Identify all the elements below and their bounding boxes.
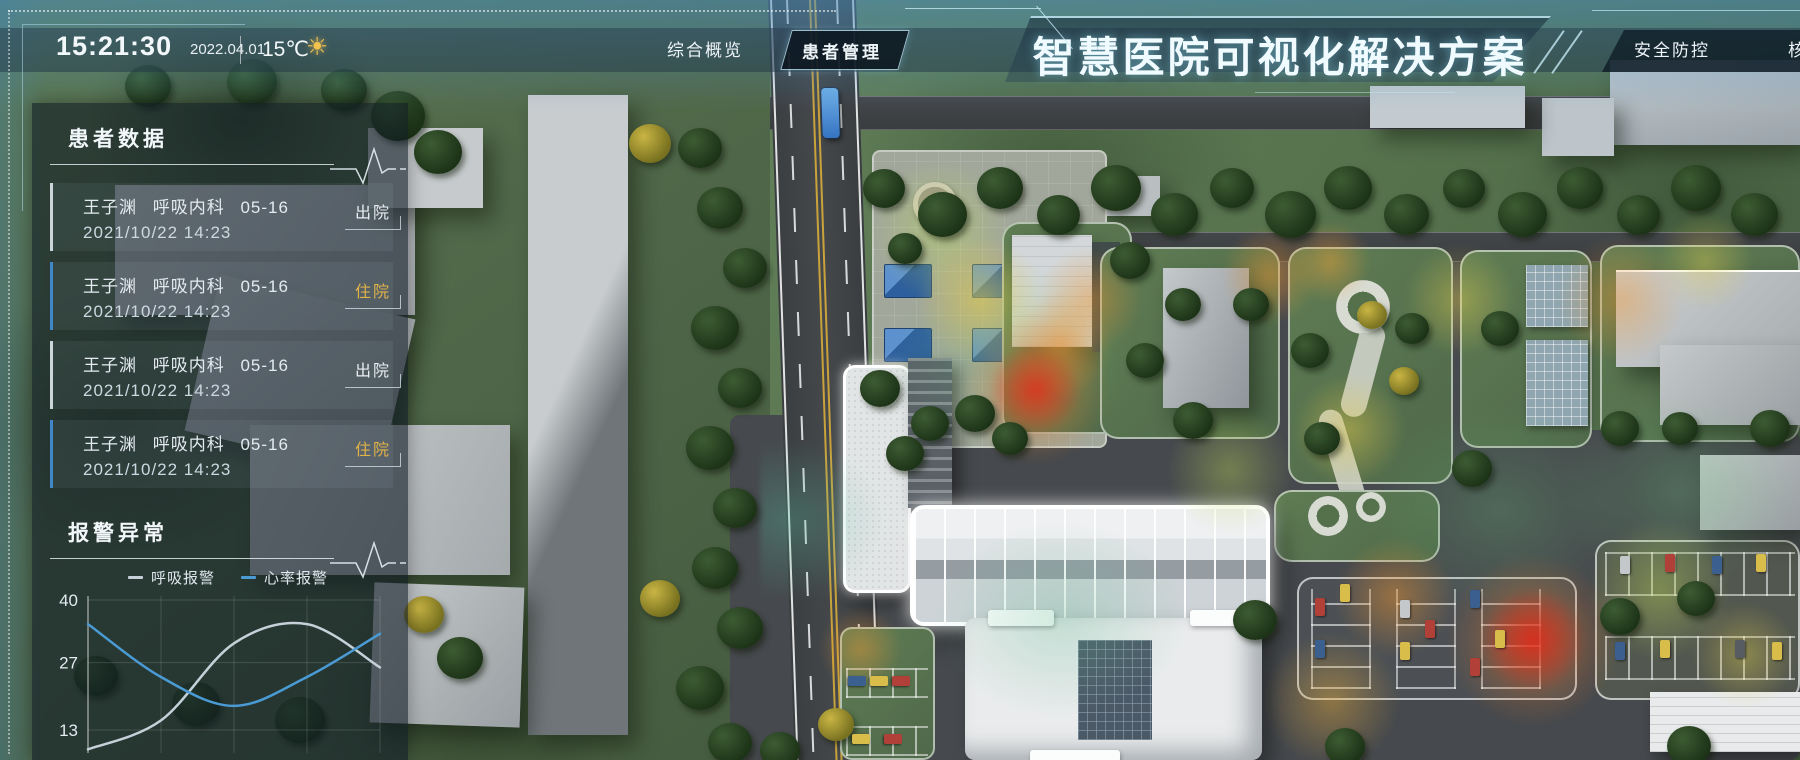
entrance-canopy	[1190, 610, 1246, 626]
park-circle	[1336, 280, 1390, 334]
parking-stalls	[1311, 589, 1371, 689]
deco-dotted-column	[8, 10, 10, 754]
section-underline	[50, 558, 334, 559]
parking-stalls	[1396, 589, 1456, 689]
main-building-highlighted[interactable]	[910, 505, 1270, 626]
status-label: 出院	[355, 357, 391, 381]
divider	[240, 36, 241, 64]
patient-bed: 05-16	[240, 435, 288, 454]
status-label: 住院	[355, 436, 391, 460]
building-west-slab	[528, 95, 628, 735]
tower-dark	[908, 358, 952, 508]
clock-date: 2022.04.01	[190, 41, 265, 58]
bus	[821, 88, 840, 138]
patient-card[interactable]: 王子渊 呼吸内科 05-16 2021/10/22 14:23 出院	[50, 341, 393, 409]
tab-nucleic-clipped[interactable]: 核	[1788, 36, 1800, 61]
deco-line	[1592, 10, 1800, 11]
parking-stalls	[1605, 552, 1795, 596]
tab-overview[interactable]: 综合概览	[667, 36, 743, 61]
legend-item-breath-alarm[interactable]: 呼吸报警	[128, 567, 215, 588]
clock-time: 15:21:30	[56, 31, 172, 62]
parking-stalls	[846, 726, 928, 756]
court-grid	[1526, 265, 1588, 327]
court-grid	[1526, 340, 1588, 426]
blue-canopy	[884, 328, 932, 362]
legend-dash-icon	[241, 576, 256, 579]
patient-card[interactable]: 王子渊 呼吸内科 05-16 2021/10/22 14:23 住院	[50, 262, 393, 330]
patient-department: 呼吸内科	[153, 356, 225, 375]
parking-stalls	[1605, 636, 1795, 680]
smart-hospital-dashboard: 15:21:30 2022.04.01 15℃ ☀ 综合概览 患者管理 智慧医院…	[0, 0, 1800, 760]
section-title-alarms: 报警异常	[68, 517, 168, 547]
patient-name: 王子渊	[83, 356, 137, 375]
entrance-canopy	[988, 610, 1054, 626]
deco-line	[905, 8, 1041, 9]
svg-text:40: 40	[59, 591, 78, 610]
patient-datetime: 2021/10/22 14:23	[83, 302, 231, 322]
road-lane-dashes	[786, 0, 815, 760]
patient-bed: 05-16	[240, 356, 288, 375]
patient-card[interactable]: 王子渊 呼吸内科 05-16 2021/10/22 14:23 住院	[50, 420, 393, 488]
patient-info: 王子渊 呼吸内科 05-16	[83, 430, 299, 455]
status-badge[interactable]: 住院	[345, 274, 401, 309]
status-badge[interactable]: 住院	[345, 432, 401, 467]
building-northeast-2	[1542, 98, 1614, 156]
park-circle	[1308, 496, 1348, 536]
blue-canopy	[884, 264, 932, 298]
legend-dash-icon	[128, 576, 143, 579]
entrance-canopy	[1030, 750, 1120, 760]
legend-label: 呼吸报警	[151, 567, 215, 588]
building-east-2	[1660, 345, 1800, 425]
patient-datetime: 2021/10/22 14:23	[83, 223, 231, 243]
building-northeast-1	[1610, 60, 1800, 145]
sun-icon: ☀	[306, 32, 328, 62]
parking-stalls	[846, 668, 928, 698]
status-badge[interactable]: 出院	[345, 195, 401, 230]
patient-name: 王子渊	[83, 435, 137, 454]
building-warehouse	[1650, 692, 1800, 752]
status-badge[interactable]: 出院	[345, 353, 401, 388]
parking-stalls	[1481, 589, 1541, 689]
tower-white	[843, 365, 911, 593]
patient-info: 王子渊 呼吸内科 05-16	[83, 351, 299, 376]
temperature: 15℃	[262, 37, 309, 62]
chart-legend: 呼吸报警 心率报警	[128, 567, 328, 588]
tab-patient-management[interactable]: 患者管理	[802, 38, 882, 63]
building-north-small	[1098, 176, 1160, 216]
tab-security[interactable]: 安全防控	[1634, 36, 1710, 61]
svg-text:13: 13	[59, 721, 78, 740]
page-title: 智慧医院可视化解决方案	[1020, 24, 1540, 85]
deco-line	[1255, 92, 1455, 93]
patient-info: 王子渊 呼吸内科 05-16	[83, 272, 299, 297]
building-ward	[1163, 268, 1249, 408]
patient-datetime: 2021/10/22 14:23	[83, 460, 231, 480]
patient-department: 呼吸内科	[153, 277, 225, 296]
patient-department: 呼吸内科	[153, 435, 225, 454]
patient-datetime: 2021/10/22 14:23	[83, 381, 231, 401]
ecg-pulse-icon	[330, 537, 406, 583]
patient-name: 王子渊	[83, 277, 137, 296]
patient-bed: 05-16	[240, 277, 288, 296]
svg-text:27: 27	[59, 654, 78, 673]
status-label: 住院	[355, 278, 391, 302]
fountain	[913, 182, 957, 226]
building-southeast	[1700, 455, 1800, 530]
status-label: 出院	[355, 199, 391, 223]
building-clinic	[1012, 235, 1092, 347]
deco-dotted-line	[8, 10, 836, 12]
legend-item-heartrate-alarm[interactable]: 心率报警	[241, 567, 328, 588]
patient-bed: 05-16	[240, 198, 288, 217]
legend-label: 心率报警	[264, 567, 328, 588]
park-circle	[1356, 492, 1386, 522]
atrium-glass-roof	[1078, 640, 1152, 740]
